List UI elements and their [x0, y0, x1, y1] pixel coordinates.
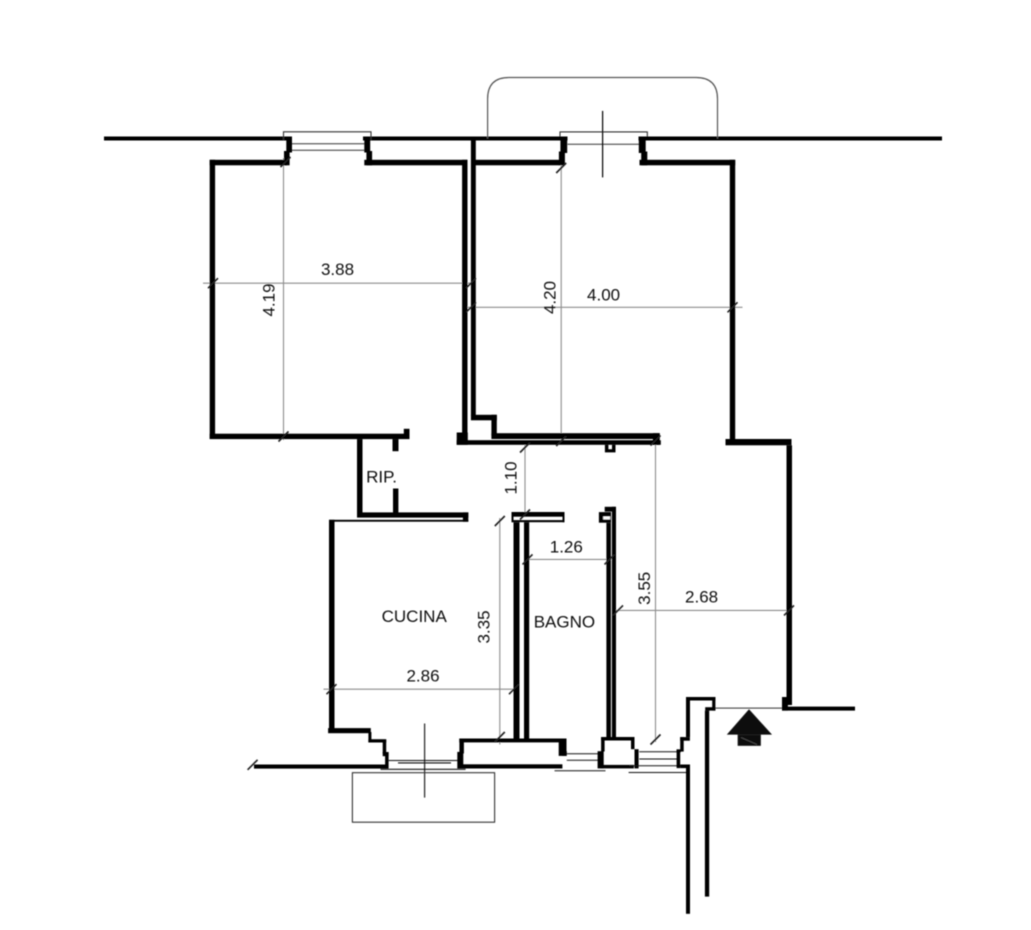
svg-text:1.26: 1.26: [550, 538, 583, 557]
svg-text:1.10: 1.10: [502, 461, 521, 494]
svg-text:3.55: 3.55: [635, 572, 654, 605]
svg-text:BAGNO: BAGNO: [534, 612, 595, 631]
svg-text:4.20: 4.20: [541, 281, 560, 314]
svg-text:4.19: 4.19: [260, 283, 279, 316]
svg-text:3.35: 3.35: [475, 610, 494, 643]
svg-text:4.00: 4.00: [587, 286, 620, 305]
svg-text:2.86: 2.86: [406, 667, 439, 686]
svg-text:2.68: 2.68: [685, 588, 718, 607]
svg-text:RIP.: RIP.: [366, 468, 397, 487]
svg-text:3.88: 3.88: [321, 260, 354, 279]
svg-text:CUCINA: CUCINA: [382, 607, 448, 626]
